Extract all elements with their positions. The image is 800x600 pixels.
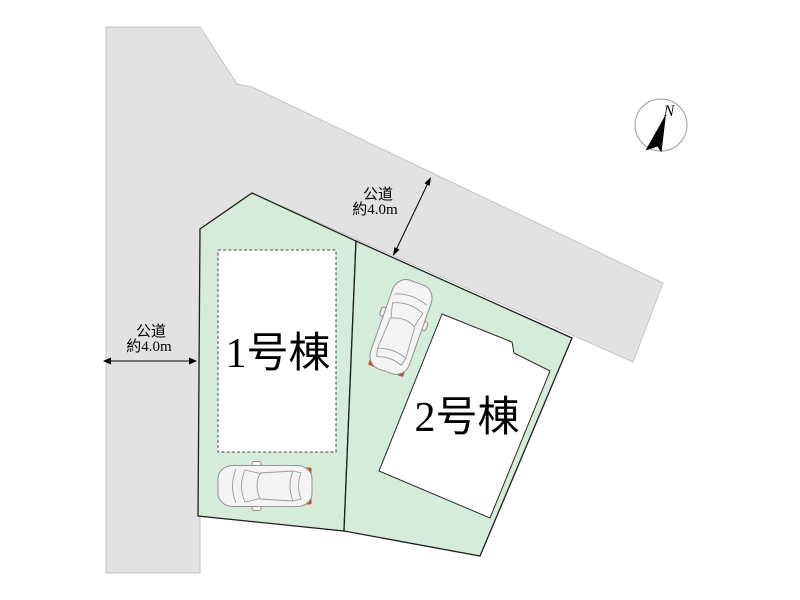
site-plan-page: 1号棟 2号棟 公道 約4.0m 公道 約4.0m N xyxy=(0,0,800,600)
north-compass-icon: N xyxy=(635,99,687,153)
left-road-label-line2: 約4.0m xyxy=(126,338,172,355)
site-plan-drawing: 1号棟 2号棟 公道 約4.0m 公道 約4.0m N xyxy=(0,0,800,600)
building-2-label: 2号棟 xyxy=(414,395,519,441)
left-road-label-line1: 公道 xyxy=(136,323,166,340)
top-road-label-line2: 約4.0m xyxy=(352,201,398,218)
building-1-label: 1号棟 xyxy=(225,331,330,377)
top-road-label-line1: 公道 xyxy=(363,186,393,203)
car-icon xyxy=(218,462,312,511)
compass-north-label: N xyxy=(663,103,676,120)
